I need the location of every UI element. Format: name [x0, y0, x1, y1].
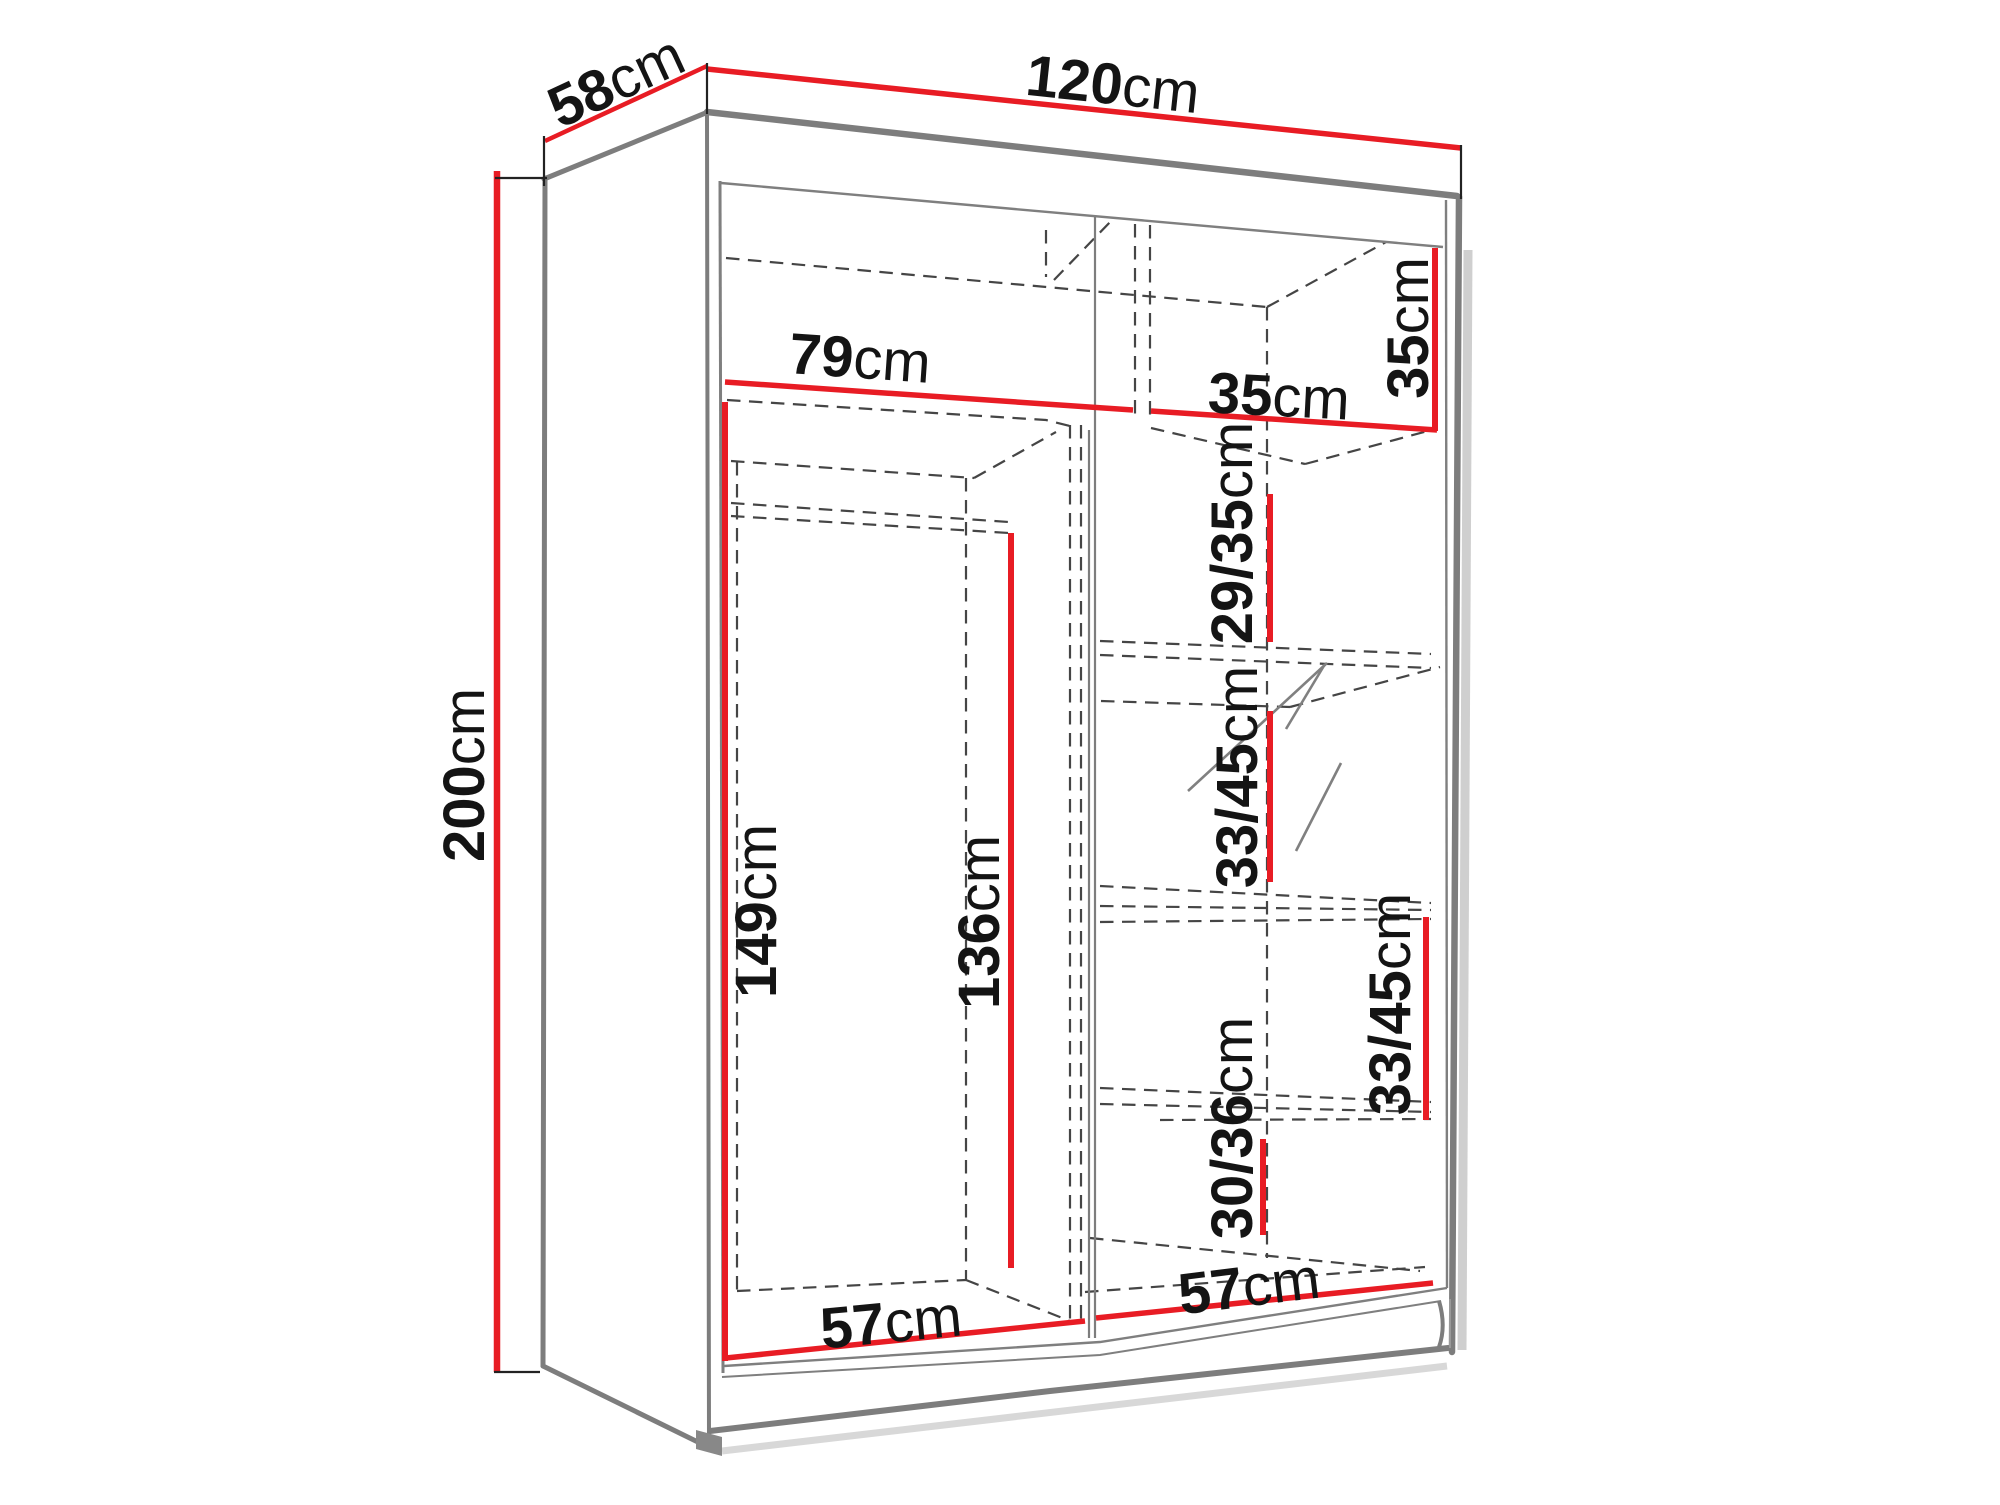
svg-text:200cm: 200cm [432, 688, 497, 862]
svg-text:149cm: 149cm [724, 824, 789, 998]
svg-text:33/45cm: 33/45cm [1358, 893, 1423, 1115]
svg-text:35cm: 35cm [1206, 360, 1351, 432]
svg-text:79cm: 79cm [787, 321, 933, 396]
svg-text:29/35cm: 29/35cm [1200, 422, 1265, 644]
svg-text:57cm: 57cm [817, 1283, 964, 1361]
svg-text:35cm: 35cm [1376, 257, 1441, 399]
svg-text:30/36cm: 30/36cm [1200, 1017, 1265, 1239]
svg-text:33/45cm: 33/45cm [1205, 666, 1270, 888]
svg-text:136cm: 136cm [947, 835, 1012, 1009]
